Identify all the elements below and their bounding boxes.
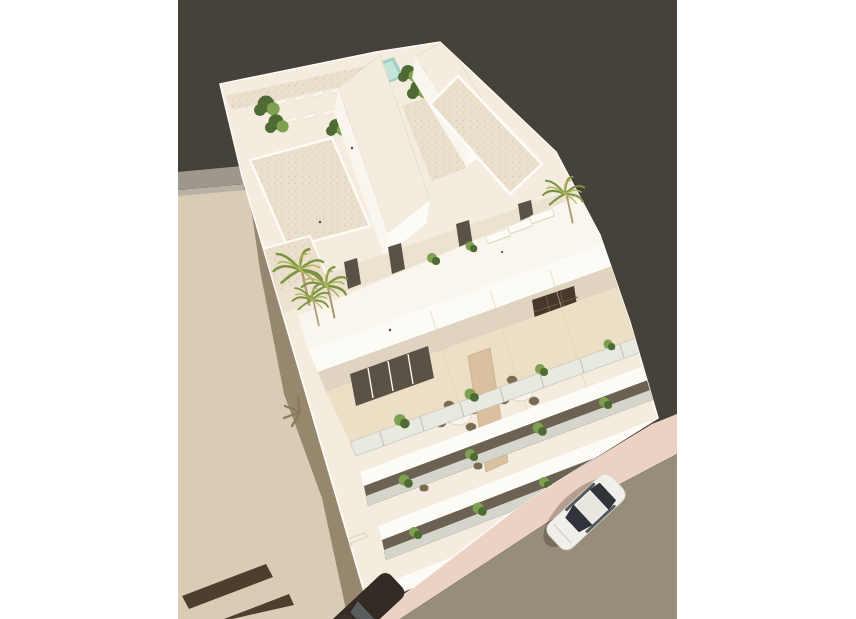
chair [529, 397, 539, 405]
speck [501, 251, 503, 253]
render-canvas [0, 0, 856, 619]
architectural-render [0, 0, 856, 619]
chair [420, 485, 429, 492]
chair [474, 463, 483, 470]
speck [319, 221, 321, 223]
speck [351, 147, 353, 149]
speck [389, 329, 391, 331]
